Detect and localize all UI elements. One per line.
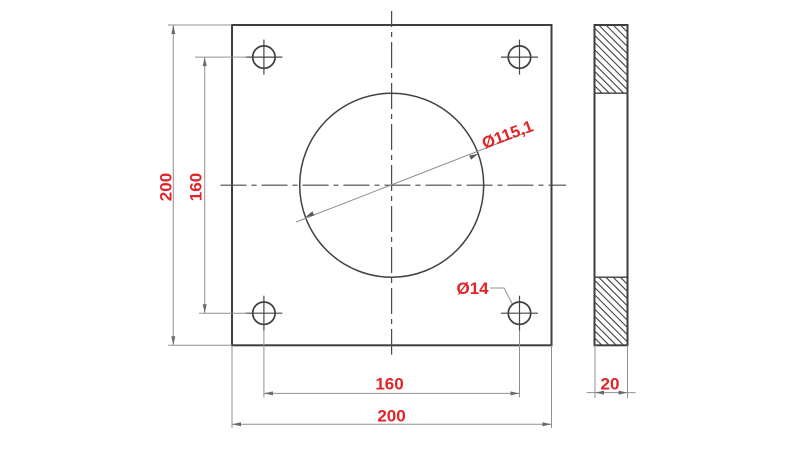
svg-text:20: 20: [601, 375, 620, 394]
svg-text:Ø14: Ø14: [457, 279, 490, 298]
svg-text:200: 200: [377, 406, 405, 425]
svg-text:200: 200: [156, 173, 175, 201]
svg-text:160: 160: [187, 173, 206, 201]
svg-text:160: 160: [375, 375, 403, 394]
